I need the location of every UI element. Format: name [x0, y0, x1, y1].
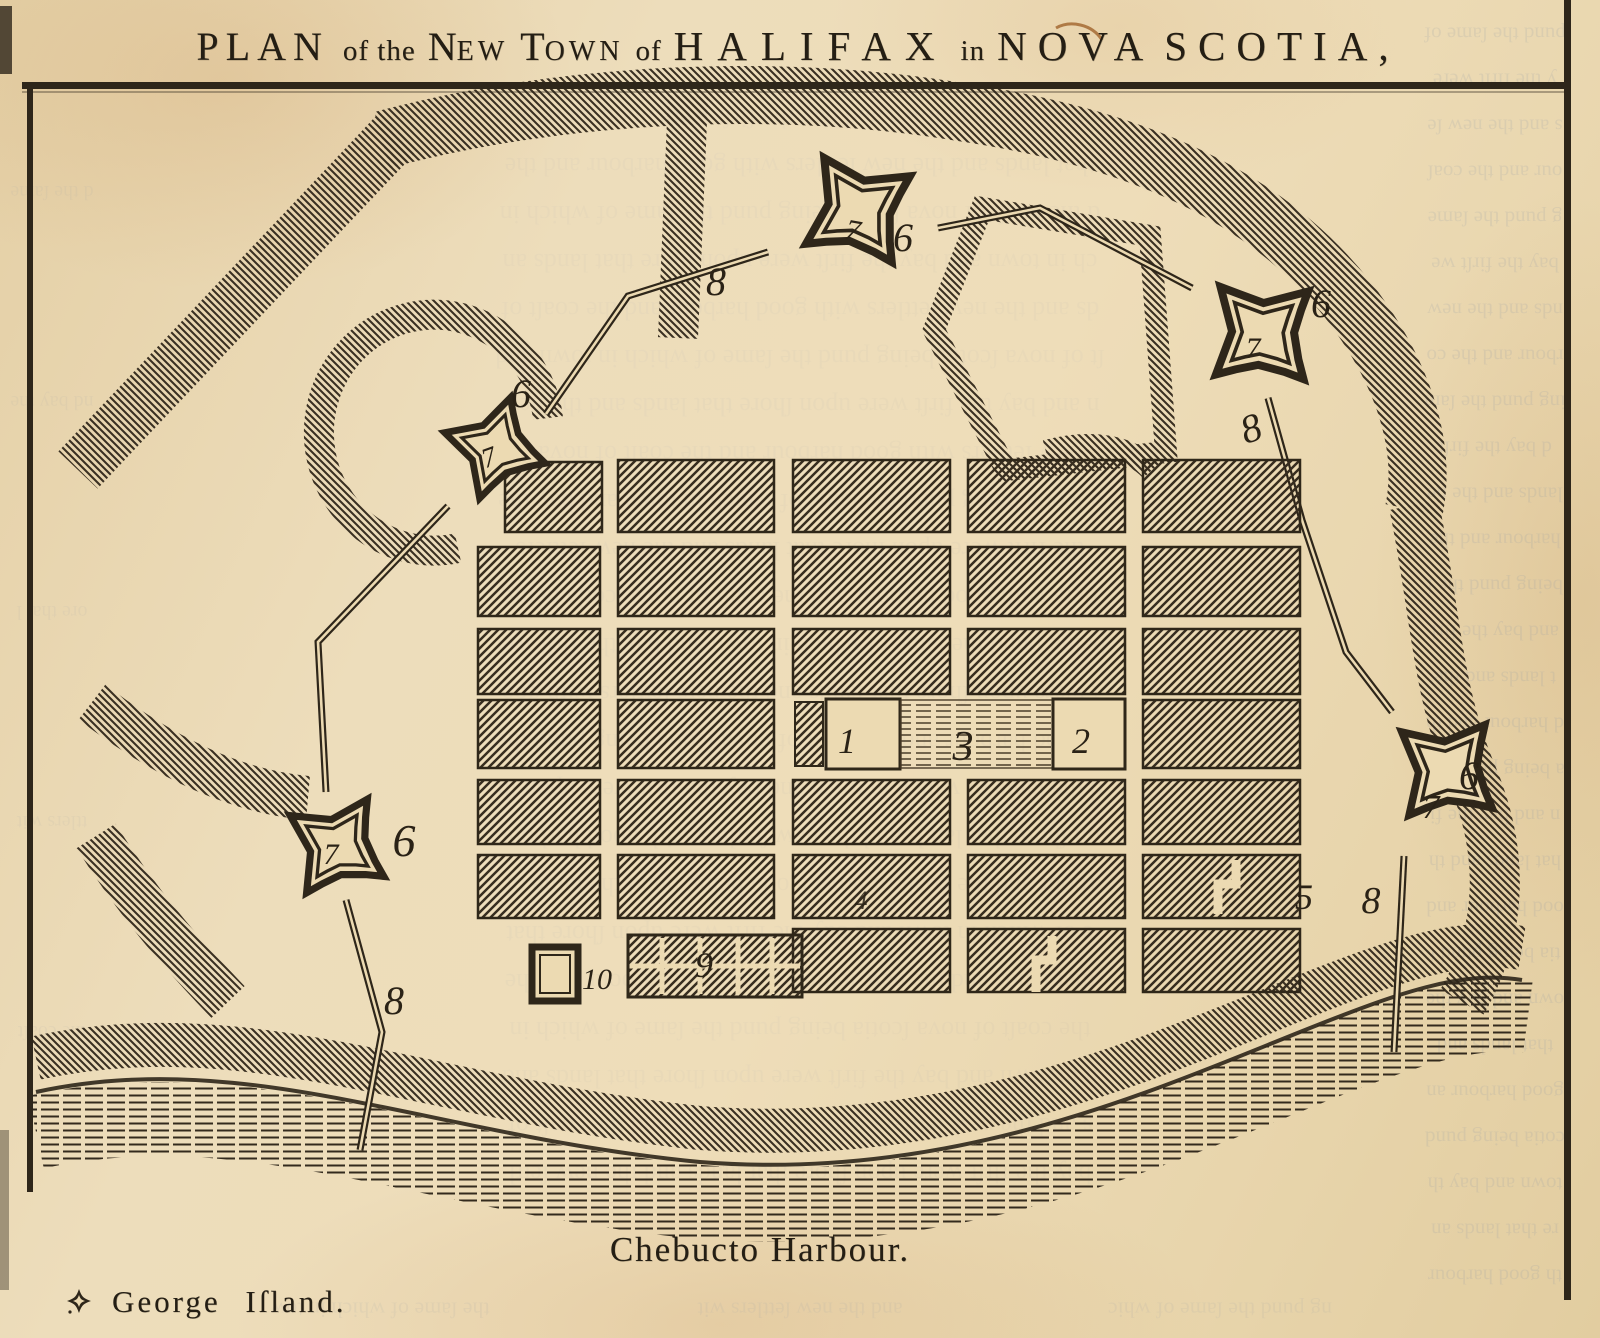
- parade-block-3: [901, 700, 1053, 768]
- map-title-segment: EW: [457, 22, 509, 82]
- show-through-text: rbour and the co: [1426, 344, 1563, 368]
- halifax-map: pund the ſame ofy the firſt weres and th…: [0, 0, 1600, 1338]
- number-label: 7: [1246, 332, 1263, 365]
- top-rule-shadow: [22, 91, 1570, 93]
- town-block: [793, 780, 950, 844]
- town-block: [478, 780, 600, 844]
- map-title: PLANof theNEWTOWNofHALIFAXinNOVASCOTIA,: [36, 16, 1560, 80]
- show-through-text: g pund the ſame: [1428, 206, 1563, 230]
- town-block: [968, 855, 1125, 918]
- show-through-text: and the new ſettlers wit: [697, 1298, 902, 1323]
- number-label: 5: [1295, 877, 1313, 917]
- number-label: 4: [855, 886, 868, 915]
- town-block: [478, 547, 600, 616]
- town-block: [1143, 460, 1300, 532]
- show-through-text: harbour and the: [1429, 528, 1561, 552]
- number-label: 2: [1072, 721, 1090, 761]
- map-title-segment: T: [520, 17, 544, 77]
- number-label: 3: [952, 724, 974, 770]
- number-label: 6: [393, 815, 416, 866]
- town-block: [793, 855, 950, 918]
- town-block: [478, 629, 600, 694]
- map-title-segment: in: [961, 21, 986, 81]
- map-title-segment: of the: [343, 21, 416, 81]
- map-page: PLANof theNEWTOWNofHALIFAXinNOVASCOTIA, …: [0, 0, 1600, 1338]
- show-through-text: good harbour an: [1426, 1080, 1564, 1104]
- town-block: [793, 629, 950, 694]
- island-marker-icon: [64, 1286, 94, 1316]
- town-block: [618, 460, 774, 532]
- show-through-text: ing pund the ſam: [1424, 390, 1566, 414]
- page-edge-mark: [0, 6, 12, 74]
- number-label: 10: [582, 963, 612, 996]
- number-label: 7: [324, 838, 341, 871]
- town-block: [968, 547, 1125, 616]
- number-label: 9: [695, 945, 713, 985]
- map-title-segment: NOVA: [997, 16, 1154, 76]
- show-through-text: ch in town and bay the firſt were upon ſ…: [503, 248, 1098, 277]
- number-label: 6: [1311, 281, 1331, 326]
- show-through-text: lands and the ne: [1427, 482, 1563, 506]
- town-block: [618, 547, 774, 616]
- show-through-text: nd bay the: [10, 391, 93, 413]
- town-block: [478, 700, 600, 768]
- number-label: 7: [1423, 789, 1442, 826]
- show-through-text: ng pund the ſame of whic: [1108, 1298, 1332, 1323]
- number-label: 8: [384, 978, 404, 1023]
- town-block: [618, 700, 774, 768]
- map-title-segment: of: [635, 21, 661, 81]
- left-rule: [27, 86, 33, 1192]
- map-title-segment: N: [428, 17, 457, 77]
- show-through-text: town and bay th: [1427, 1172, 1562, 1196]
- map-title-segment: HALIFAX: [674, 16, 949, 76]
- town-block: [968, 780, 1125, 844]
- island-label: George Iſland.: [112, 1284, 346, 1320]
- town-block: [1143, 700, 1300, 768]
- town-block: [478, 855, 600, 918]
- town-block: [1143, 929, 1300, 992]
- show-through-text: ore that l: [16, 601, 88, 623]
- show-through-text: the coaſt of nova ſcotia being pund the …: [509, 1016, 1090, 1045]
- number-label: 6: [511, 371, 531, 416]
- town-block: [618, 855, 774, 918]
- top-rule: [22, 82, 1570, 89]
- town-block: [618, 629, 774, 694]
- town-block: [968, 629, 1125, 694]
- show-through-text: d the ſame: [10, 181, 93, 203]
- show-through-text: ttlers wit: [16, 811, 87, 833]
- town-block: [618, 780, 774, 844]
- town-block: [795, 702, 823, 766]
- fort-icon: [1216, 287, 1308, 379]
- show-through-text: d bay the firſt: [1438, 436, 1552, 460]
- number-label: 8: [1234, 404, 1267, 453]
- town-block: [793, 929, 950, 992]
- town-block: [968, 460, 1125, 532]
- map-title-segment: PLAN: [196, 17, 328, 77]
- number-label: 8: [1362, 880, 1381, 922]
- map-title-segment: SCOTIA,: [1164, 16, 1399, 76]
- number-label: 1: [838, 721, 856, 761]
- show-through-text: cotia being pund: [1425, 1126, 1565, 1150]
- show-through-text: that lands and the new ſettlers with goo…: [505, 152, 1096, 181]
- right-rule: [1564, 0, 1571, 1300]
- show-through-text: our and the coaſ: [1426, 160, 1562, 184]
- number-label: 6: [1459, 753, 1479, 798]
- town-block: [1143, 780, 1300, 844]
- number-label: 6: [893, 215, 913, 260]
- town-block: [793, 460, 950, 532]
- number-label: 8: [706, 259, 726, 304]
- map-title-segment: OWN: [545, 22, 624, 82]
- town-block: [1143, 547, 1300, 616]
- show-through-text: n and bay the firſt were upon ſhore that…: [500, 392, 1099, 421]
- show-through-text: ds and the new ſettlers with good harbou…: [500, 296, 1099, 325]
- show-through-text: bay the firſt we: [1431, 252, 1559, 276]
- show-through-text: s and the new ſe: [1427, 114, 1562, 138]
- town-block: [1143, 629, 1300, 694]
- harbour-label: Chebucto Harbour.: [0, 1230, 1520, 1270]
- show-through-text: nds and the new: [1426, 298, 1563, 322]
- town-block: [793, 547, 950, 616]
